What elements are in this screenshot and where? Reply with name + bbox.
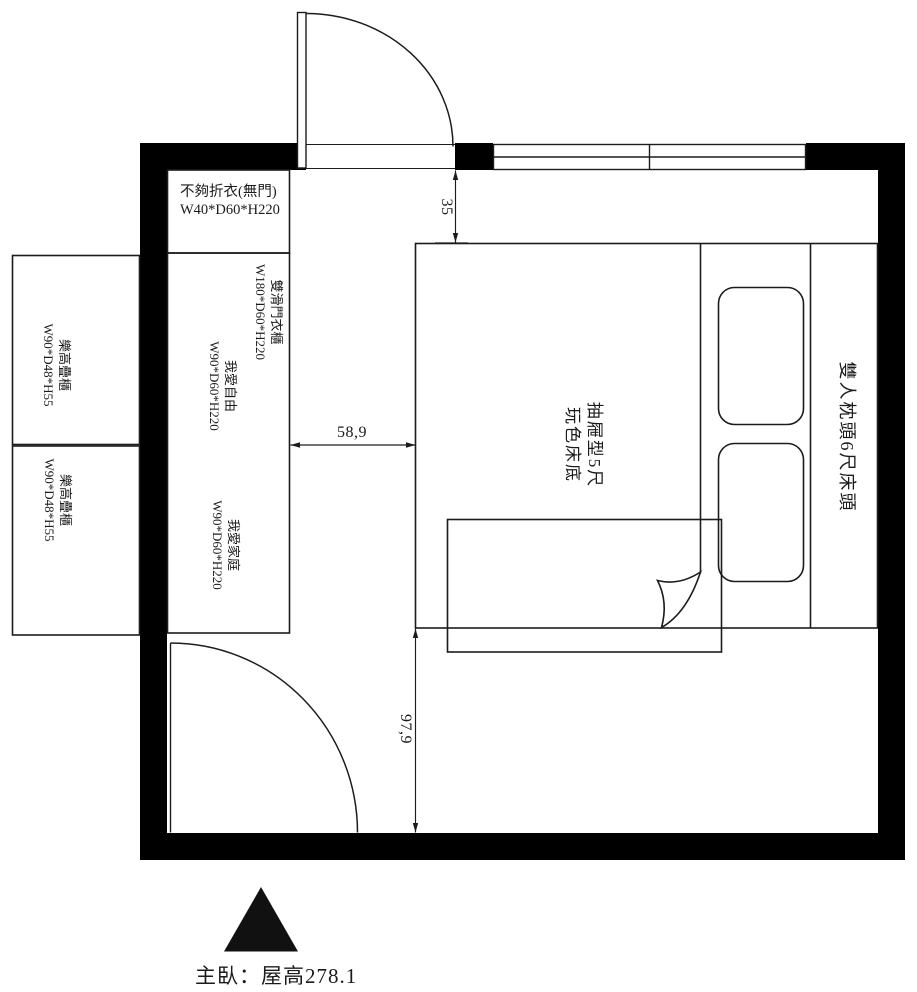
cabinet-lego-bottom (13, 446, 140, 635)
bed-base-line1: 抽屜型5尺 (583, 402, 605, 489)
plan-title: 主臥：屋高278.1 (195, 960, 357, 990)
window-icon (494, 145, 806, 170)
cabinet-size: W90*D48*H55 (41, 458, 57, 541)
floor-plan-drawing (0, 0, 917, 992)
blanket-fold-icon (658, 572, 701, 628)
dimension-58-9: 58,9 (322, 424, 382, 442)
north-arrow-icon (224, 887, 298, 952)
cabinet-name: 我愛自由 (222, 360, 238, 412)
cabinet-size: W90*D48*H55 (40, 323, 56, 406)
arrow-icon (413, 823, 418, 833)
door-opening (306, 145, 455, 169)
cabinet-name: 樂高疊櫃 (56, 339, 72, 391)
headboard-text: 雙人枕頭6尺床頭 (835, 362, 859, 513)
cabinet-name: 不夠折衣(無門) (180, 184, 280, 202)
cabinet-size: W40*D60*H220 (180, 202, 280, 220)
label-family-cabinet: 我愛家庭 W90*D60*H220 (208, 495, 242, 595)
arrow-icon (413, 629, 418, 639)
cabinet-name: 我愛家庭 (225, 519, 241, 571)
bed-outline (416, 244, 878, 629)
label-no-door-shelf: 不夠折衣(無門) W40*D60*H220 (180, 184, 280, 219)
cabinet-name: 樂高疊櫃 (57, 474, 73, 526)
bed (416, 244, 878, 653)
arrow-icon (291, 442, 301, 448)
floor-plan: 不夠折衣(無門) W40*D60*H220 雙滑門衣櫃 W180*D60*H22… (0, 0, 917, 992)
wall-top-right-segment (806, 143, 905, 170)
dimension-97-9: 97,9 (396, 706, 414, 752)
label-bed-base: 抽屜型5尺 玩色床底 (560, 395, 606, 495)
label-lego-bottom: 樂高疊櫃 W90*D48*H55 (41, 456, 73, 544)
cabinet-size: W90*D60*H220 (206, 341, 222, 431)
pillow-top-icon (719, 288, 804, 425)
door-top-leaf (298, 13, 307, 169)
label-headboard: 雙人枕頭6尺床頭 (835, 351, 859, 523)
wall-left (140, 143, 167, 860)
label-lego-top: 樂高疊櫃 W90*D48*H55 (40, 321, 72, 409)
cabinet-name: 雙滑門衣櫃 (268, 279, 284, 344)
dimension-lines (291, 171, 469, 833)
door-bottom-icon (171, 643, 358, 833)
arrow-icon (453, 171, 458, 181)
pillow-bottom-icon (719, 444, 804, 582)
wall-right (878, 143, 905, 860)
arrow-icon (406, 442, 416, 448)
cabinet-lego-top (13, 256, 140, 445)
door-bottom-swing-arc (171, 643, 358, 833)
wall-top-mid-segment (455, 143, 493, 170)
cabinet-size: W90*D60*H220 (209, 500, 225, 590)
arrow-icon (453, 233, 458, 243)
label-sliding-wardrobe: 雙滑門衣櫃 W180*D60*H220 (250, 260, 286, 364)
dimension-35: 35 (437, 190, 455, 224)
wall-bottom (140, 833, 905, 860)
label-freedom-cabinet: 我愛自由 W90*D60*H220 (205, 338, 239, 434)
door-top-swing-arc (307, 14, 454, 147)
bed-base-line2: 玩色床底 (561, 407, 583, 483)
cabinet-size: W180*D60*H220 (252, 264, 268, 360)
wall-top-left-segment (140, 143, 306, 170)
walls (140, 143, 905, 860)
